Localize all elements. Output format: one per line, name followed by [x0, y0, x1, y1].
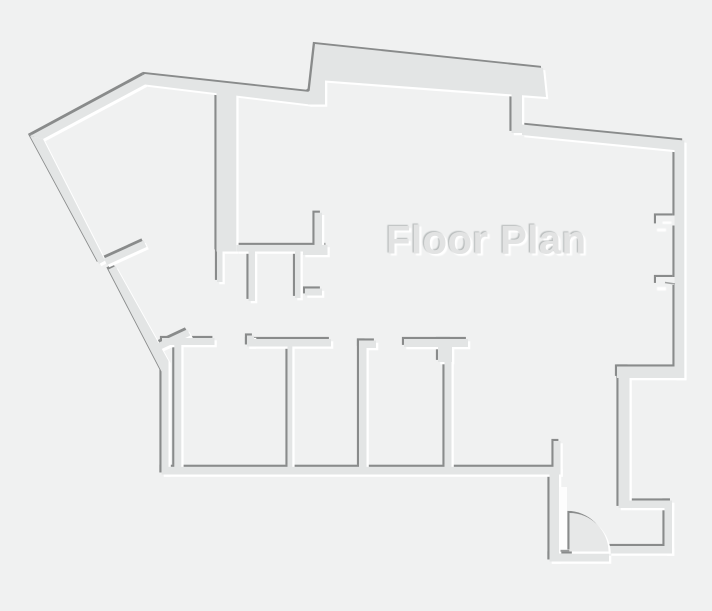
svg-text:Floor Plan: Floor Plan	[386, 218, 586, 263]
